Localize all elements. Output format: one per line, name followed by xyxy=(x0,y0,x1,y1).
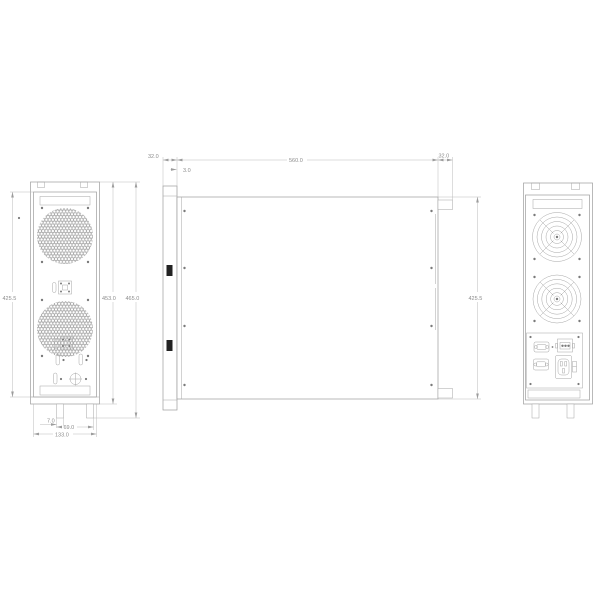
dim-label-side-rear-tab-depth: 32.0 xyxy=(439,154,450,160)
front-view xyxy=(18,182,100,418)
fan-grille-icon-top xyxy=(37,208,93,264)
side-rear-tab-top xyxy=(438,200,453,210)
dim-side-panel-thickness: 3.0 xyxy=(171,168,191,174)
dim-front-chassis-height: 453.0 xyxy=(100,182,141,404)
fan-grille-icon-bottom xyxy=(37,301,93,357)
side-view xyxy=(163,186,453,410)
front-mounting-foot-left xyxy=(57,404,64,418)
dim-label-front-overall-height: 465.0 xyxy=(126,296,140,302)
dim-label-front-foot-spacing: 69.0 xyxy=(64,425,75,431)
dim-label-front-foot-offset: 7.0 xyxy=(47,419,55,425)
rear-mounting-foot-left xyxy=(532,404,539,418)
dim-side-front-ear-depth: 32.0 xyxy=(148,154,177,160)
rear-connector-plate xyxy=(527,333,583,388)
rear-view xyxy=(524,183,593,418)
mechanical-drawing-page: 425.5 453.0 465.0 7.0 69.0 xyxy=(0,0,600,600)
dim-side-body-depth: 560.0 xyxy=(177,158,438,164)
side-panel xyxy=(177,197,438,399)
dim-label-side-panel-height: 425.5 xyxy=(469,296,483,302)
dim-front-panel-height: 425.5 xyxy=(3,192,34,397)
rear-mounting-foot-right xyxy=(567,404,574,418)
side-ear-slot-bottom xyxy=(167,340,173,351)
front-mounting-foot-right xyxy=(87,404,94,418)
dim-side-rear-tab-depth: 32.0 xyxy=(438,154,453,161)
side-ear-slot-top xyxy=(167,265,173,276)
dim-label-side-panel-thickness: 3.0 xyxy=(183,168,191,174)
dim-front-foot-spacing: 69.0 xyxy=(57,418,94,431)
side-rack-ear xyxy=(163,186,177,410)
side-rear-tab-bottom xyxy=(438,389,453,399)
mechanical-drawing-canvas: 425.5 453.0 465.0 7.0 69.0 xyxy=(0,0,600,600)
dim-front-overall-height: 465.0 xyxy=(94,182,141,418)
dim-label-front-chassis-height: 453.0 xyxy=(102,296,116,302)
dim-side-panel-height: 425.5 xyxy=(438,197,482,399)
dim-label-front-overall-width: 133.0 xyxy=(55,433,69,439)
dim-label-side-front-ear-depth: 32.0 xyxy=(148,154,159,160)
dim-front-foot-offset: 7.0 xyxy=(40,418,64,428)
dim-label-front-panel-height: 425.5 xyxy=(3,296,17,302)
dim-label-side-body-depth: 560.0 xyxy=(289,158,303,164)
